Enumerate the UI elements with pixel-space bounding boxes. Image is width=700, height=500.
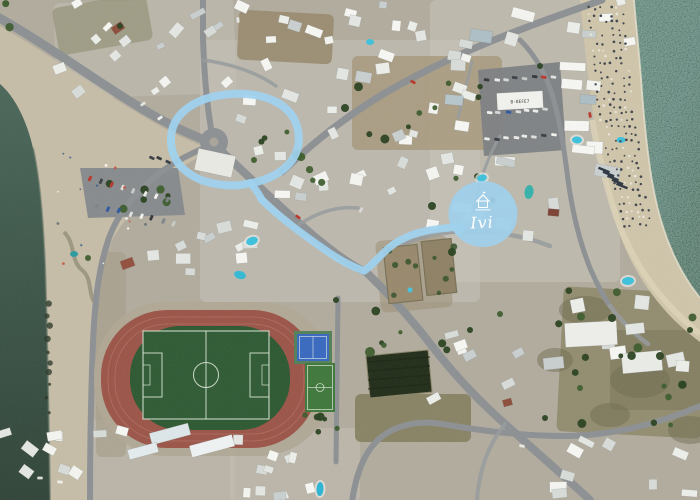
marker-subtext-line	[475, 209, 491, 211]
marker-label: Ivi	[469, 212, 494, 232]
satellite-image: B-8EFE7 Ivi	[0, 0, 700, 500]
aerial-map: B-8EFE7 Ivi	[0, 0, 700, 500]
photo-grain	[0, 0, 700, 500]
